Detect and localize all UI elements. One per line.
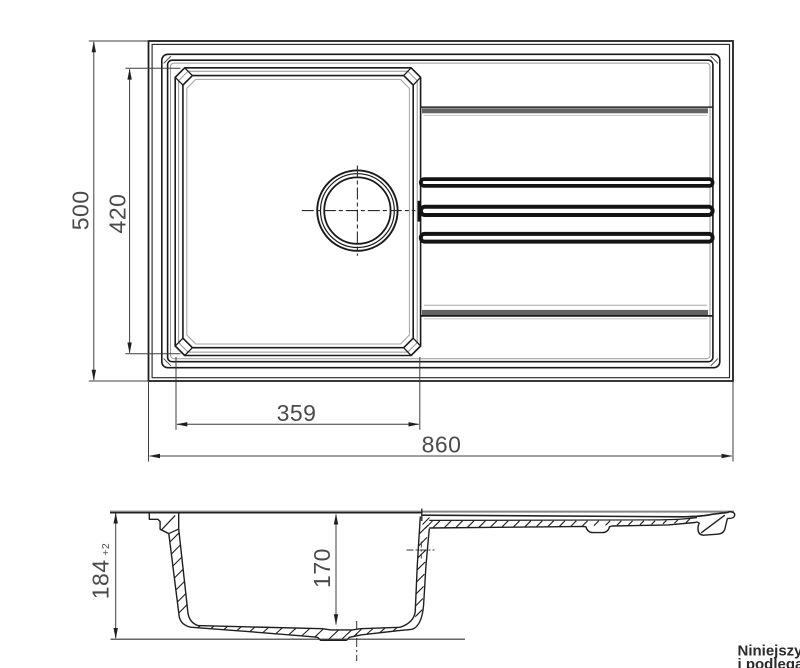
svg-text:184: 184 <box>88 559 114 599</box>
svg-text:359: 359 <box>277 400 317 426</box>
svg-text:+2: +2 <box>100 543 112 556</box>
svg-text:500: 500 <box>68 190 94 230</box>
svg-text:420: 420 <box>105 194 131 234</box>
svg-text:170: 170 <box>309 548 335 588</box>
svg-text:860: 860 <box>422 432 462 458</box>
svg-text:i podlega: i podlega <box>738 656 800 668</box>
